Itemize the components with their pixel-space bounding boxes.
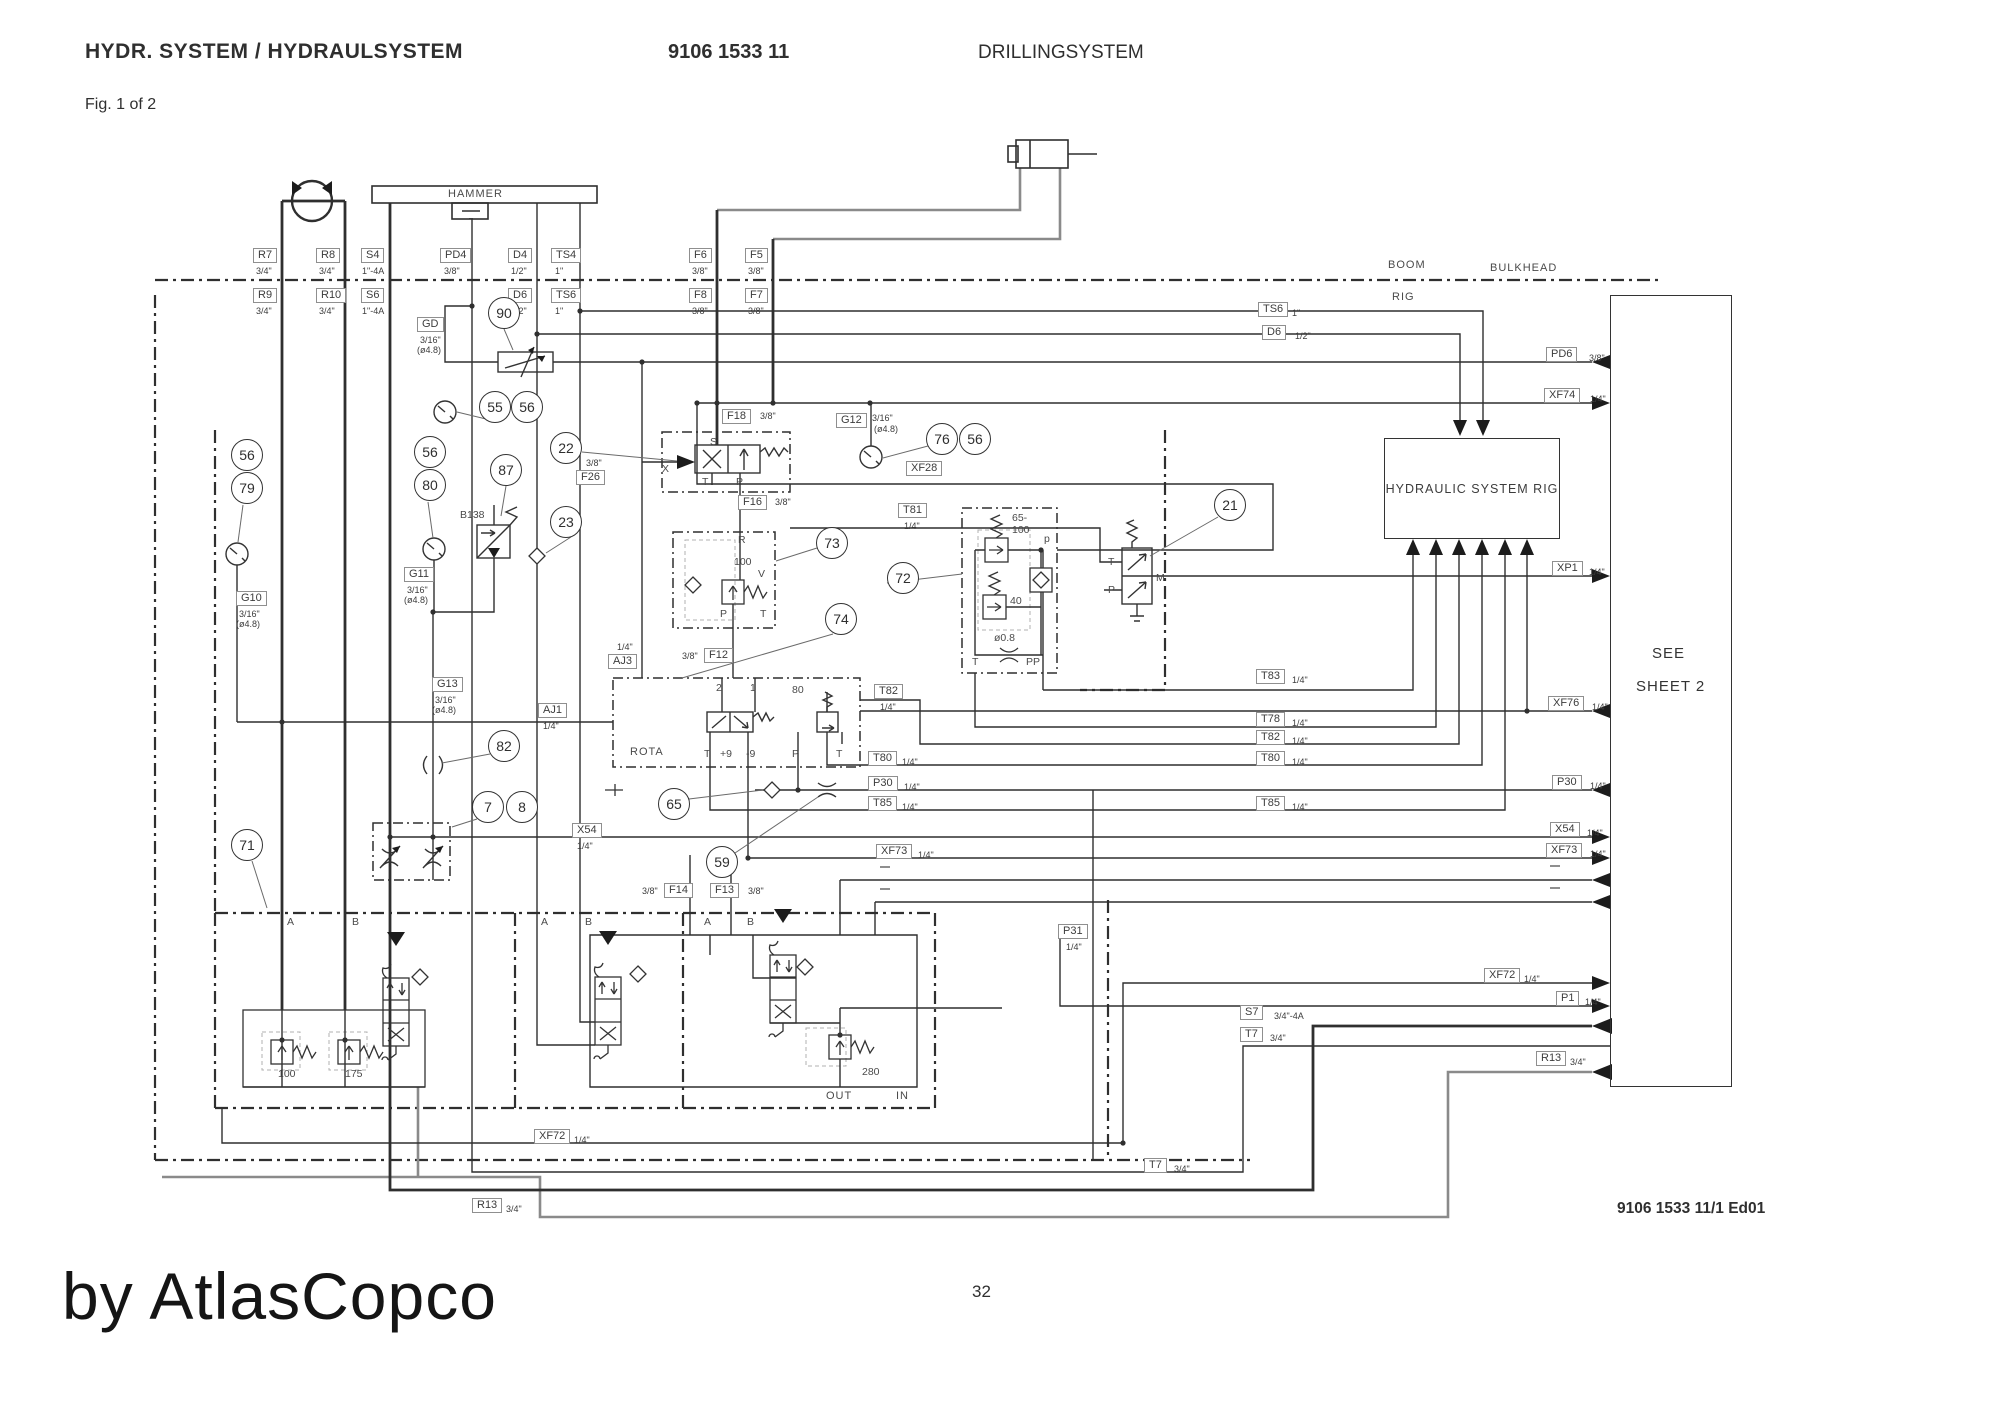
document-number: 9106 1533 11: [668, 41, 789, 64]
label-g13: G13: [432, 677, 463, 692]
schematic-page: HYDR. SYSTEM / HYDRAULSYSTEM 9106 1533 1…: [0, 0, 2000, 1413]
port-label-s6: S6: [361, 288, 384, 303]
letter-t-rota: T: [704, 748, 710, 760]
label-ar11-l: [880, 866, 890, 868]
hose-size-xp1: 1/4": [1589, 567, 1605, 577]
port-size-s4: 1"-4A: [362, 266, 384, 276]
hose-label-ts6: TS6: [1258, 302, 1288, 317]
size-p30-l: 1/4": [904, 782, 920, 792]
hydraulic-system-rig-box: HYDRAULIC SYSTEM RIG: [1384, 438, 1560, 539]
value-orifice: ø0.8: [994, 632, 1015, 644]
hose-size-p30-r: 1/4": [1590, 781, 1606, 791]
label-t83: T83: [1256, 669, 1285, 684]
port-label-r7: R7: [253, 248, 277, 263]
size-t80-l: 1/4": [902, 757, 918, 767]
letter-t-f18: T: [702, 476, 708, 488]
system-name: DRILLINGSYSTEM: [978, 42, 1144, 64]
value-65: 65-: [1012, 512, 1027, 524]
hose-size-s7: 3/4"-4A: [1274, 1011, 1304, 1021]
drill-g13: (ø4.8): [432, 705, 456, 715]
port-size-ts6: 1": [555, 306, 563, 316]
callout-22: 22: [550, 432, 582, 464]
letter-b-sec2: B: [585, 916, 592, 928]
callout-56-d: 56: [959, 423, 991, 455]
port-size-ts4: 1": [555, 266, 563, 276]
size-t78: 1/4": [1292, 718, 1308, 728]
letter-r: R: [738, 534, 746, 546]
size-aj3: 1/4": [617, 642, 633, 652]
letter-t-72: T: [972, 656, 978, 668]
callout-82: 82: [488, 730, 520, 762]
port-label-f6: F6: [689, 248, 712, 263]
size-aj1: 1/4": [543, 721, 559, 731]
callout-79: 79: [231, 472, 263, 504]
page-number: 32: [972, 1282, 991, 1302]
size-t7-b: 3/4": [1174, 1164, 1190, 1174]
label-p30-l: P30: [868, 776, 898, 791]
callout-7: 7: [472, 791, 504, 823]
label-g10: G10: [236, 591, 267, 606]
label-xf28: XF28: [906, 461, 942, 476]
letter-p-small: p: [1044, 533, 1050, 545]
label-f12: F12: [704, 648, 733, 663]
label-b138: B138: [460, 509, 485, 521]
callout-56-a: 56: [511, 391, 543, 423]
zone-boom: BOOM: [1388, 259, 1426, 271]
port-label-s4: S4: [361, 248, 384, 263]
label-p31: P31: [1058, 924, 1088, 939]
label-f13: F13: [710, 883, 739, 898]
size-t85-r: 1/4": [1292, 802, 1308, 812]
callout-74: 74: [825, 603, 857, 635]
letter-p-73: P: [720, 608, 727, 620]
letter-s-f18: S: [710, 436, 717, 448]
hose-size-xf76: 1/4": [1592, 702, 1608, 712]
port-size-d4: 1/2": [511, 266, 527, 276]
callout-73: 73: [816, 527, 848, 559]
value-100: 100: [278, 1068, 296, 1080]
zone-hammer: HAMMER: [448, 188, 503, 200]
hose-label-r13-r: R13: [1536, 1051, 1566, 1066]
port-size-r7: 3/4": [256, 266, 272, 276]
size-x54-l: 1/4": [577, 841, 593, 851]
hose-size-r13-r: 3/4": [1570, 1057, 1586, 1067]
label-t81: T81: [898, 503, 927, 518]
hose-size-xf73-r: 1/4": [1590, 849, 1606, 859]
hose-label-xf73-r: XF73: [1546, 843, 1582, 858]
hose-label-ar13-r: [1550, 887, 1560, 889]
size-g12: 3/16": [872, 413, 893, 423]
hose-label-pd6: PD6: [1546, 347, 1577, 362]
drill-g11: (ø4.8): [404, 595, 428, 605]
size-t82-l: 1/4": [880, 702, 896, 712]
value-175: 175: [345, 1068, 363, 1080]
hose-size-d6: 1/2": [1295, 331, 1311, 341]
port-size-s6: 1"-4A: [362, 306, 384, 316]
port-label-f5: F5: [745, 248, 768, 263]
label-aj3: AJ3: [608, 654, 637, 669]
size-f26: 3/8": [586, 458, 602, 468]
port-size-f6: 3/8": [692, 266, 708, 276]
hose-label-x54-r: X54: [1550, 822, 1580, 837]
port-label-pd4: PD4: [440, 248, 471, 263]
label-g11: G11: [404, 567, 434, 582]
label-g12: G12: [836, 413, 867, 428]
size-t80-r: 1/4": [1292, 757, 1308, 767]
size-f14: 3/8": [642, 886, 658, 896]
zone-rota: ROTA: [630, 746, 664, 758]
label-t82-r: T82: [1256, 730, 1285, 745]
label-t78: T78: [1256, 712, 1285, 727]
port-label-r8: R8: [316, 248, 340, 263]
watermark: by AtlasCopco: [62, 1258, 497, 1334]
letter-a-sec3: A: [704, 916, 711, 928]
port-size-f8: 3/8": [692, 306, 708, 316]
letter-t-21: T: [1108, 556, 1114, 568]
size-f16: 3/8": [775, 497, 791, 507]
size-t85-l: 1/4": [902, 802, 918, 812]
letter-v: V: [758, 568, 765, 580]
label-x54-l: X54: [572, 823, 602, 838]
letter-t2-rota: T: [836, 748, 842, 760]
hose-label-p1: P1: [1556, 991, 1579, 1006]
letter-pp-72: PP: [1026, 656, 1040, 668]
hose-label-p30-r: P30: [1552, 775, 1582, 790]
port-size-f5: 3/8": [748, 266, 764, 276]
hose-label-ar11-r: [1550, 865, 1560, 867]
label-t85-l: T85: [868, 796, 897, 811]
zone-in: IN: [896, 1090, 909, 1102]
callout-23: 23: [550, 506, 582, 538]
callout-87: 87: [490, 454, 522, 486]
port-size-r10: 3/4": [319, 306, 335, 316]
label-r13-b: R13: [472, 1198, 502, 1213]
drill-gd: (ø4.8): [417, 345, 441, 355]
port-label-f7: F7: [745, 288, 768, 303]
label-aj1: AJ1: [538, 703, 567, 718]
callout-21: 21: [1214, 489, 1246, 521]
letter-2-rota: 2: [716, 682, 722, 694]
letter-p-f18: P: [736, 476, 743, 488]
callout-56-c: 56: [414, 436, 446, 468]
port-size-r9: 3/4": [256, 306, 272, 316]
hose-label-d6: D6: [1262, 325, 1286, 340]
hose-size-ts6: 1": [1292, 308, 1300, 318]
port-label-r9: R9: [253, 288, 277, 303]
callout-90: 90: [488, 297, 520, 329]
port-label-r10: R10: [316, 288, 346, 303]
letter-a-sec2: A: [541, 916, 548, 928]
label-xf73-l: XF73: [876, 844, 912, 859]
size-t83: 1/4": [1292, 675, 1308, 685]
label-xf72-b: XF72: [534, 1129, 570, 1144]
size-t82-r: 1/4": [1292, 736, 1308, 746]
label-t7-b: T7: [1144, 1158, 1167, 1173]
see-sheet2-line2: SHEET 2: [1636, 678, 1705, 695]
hose-size-t7-r: 3/4": [1270, 1033, 1286, 1043]
value-280: 280: [862, 1066, 880, 1078]
letter-b-sec3: B: [747, 916, 754, 928]
port-size-f7: 3/8": [748, 306, 764, 316]
label-f18: F18: [722, 409, 751, 424]
size-xf73-l: 1/4": [918, 850, 934, 860]
port-size-r8: 3/4": [319, 266, 335, 276]
hose-label-xf74: XF74: [1544, 388, 1580, 403]
label-gd: GD: [417, 317, 444, 332]
callout-55: 55: [479, 391, 511, 423]
letter-m-21: M: [1156, 572, 1165, 584]
label-t80-l: T80: [868, 751, 897, 766]
letter-t-73: T: [760, 608, 766, 620]
hose-size-p1: 1/4": [1585, 997, 1601, 1007]
hose-size-x54-r: 1/4": [1587, 828, 1603, 838]
label-t80-r: T80: [1256, 751, 1285, 766]
label-f16: F16: [738, 495, 767, 510]
edition-number: 9106 1533 11/1 Ed01: [1617, 1200, 1765, 1218]
drill-g12: (ø4.8): [874, 424, 898, 434]
size-g11: 3/16": [407, 585, 428, 595]
figure-caption: Fig. 1 of 2: [85, 96, 156, 114]
value-65b: 100: [1012, 524, 1030, 536]
letter-p-21: P: [1108, 584, 1115, 596]
hose-size-pd6: 3/8": [1589, 353, 1605, 363]
size-f13: 3/8": [748, 886, 764, 896]
hose-label-xp1: XP1: [1552, 561, 1583, 576]
hose-label-s7: S7: [1240, 1005, 1263, 1020]
size-gd: 3/16": [420, 335, 441, 345]
hose-size-xf72-r: 1/4": [1524, 974, 1540, 984]
callout-65: 65: [658, 788, 690, 820]
letter-a-sec1: A: [287, 916, 294, 928]
zone-bulkhead: BULKHEAD: [1490, 262, 1557, 274]
callout-71: 71: [231, 829, 263, 861]
port-label-f8: F8: [689, 288, 712, 303]
size-g10: 3/16": [239, 609, 260, 619]
label-f14: F14: [664, 883, 693, 898]
callout-59: 59: [706, 846, 738, 878]
size-t81: 1/4": [904, 521, 920, 531]
value-40: 40: [1010, 595, 1022, 607]
value-80: 80: [792, 684, 804, 696]
zone-out: OUT: [826, 1090, 852, 1102]
label-ar13-l: [880, 888, 890, 890]
letter-b-sec1: B: [352, 916, 359, 928]
hose-size-xf74: 1/4": [1590, 394, 1606, 404]
page-title: HYDR. SYSTEM / HYDRAULSYSTEM: [85, 40, 463, 64]
size-xf72-b: 1/4": [574, 1135, 590, 1145]
port-label-ts4: TS4: [551, 248, 581, 263]
hose-label-xf76: XF76: [1548, 696, 1584, 711]
see-sheet2-line1: SEE: [1652, 645, 1685, 662]
callout-80: 80: [414, 469, 446, 501]
size-f18: 3/8": [760, 411, 776, 421]
zone-rig: RIG: [1392, 291, 1415, 303]
letter-1-rota: 1: [750, 682, 756, 694]
label-t82-l: T82: [874, 684, 903, 699]
size-p31: 1/4": [1066, 942, 1082, 952]
hose-label-t7-r: T7: [1240, 1027, 1263, 1042]
port-size-pd4: 3/8": [444, 266, 460, 276]
hose-label-xf72-r: XF72: [1484, 968, 1520, 983]
letter-plus9: +9: [720, 748, 732, 760]
port-label-ts6: TS6: [551, 288, 581, 303]
port-label-d4: D4: [508, 248, 532, 263]
callout-72: 72: [887, 562, 919, 594]
letter-x-f18: X: [662, 463, 669, 475]
letter-p-rota: P: [792, 748, 799, 760]
callout-76: 76: [926, 423, 958, 455]
callout-8: 8: [506, 791, 538, 823]
label-t85-r: T85: [1256, 796, 1285, 811]
size-r13-b: 3/4": [506, 1204, 522, 1214]
drill-g10: (ø4.8): [236, 619, 260, 629]
letter-minus9: -9: [746, 748, 755, 760]
size-f12: 3/8": [682, 651, 698, 661]
size-g13: 3/16": [435, 695, 456, 705]
callout-56-b: 56: [231, 439, 263, 471]
value-100-relief: 100: [734, 556, 752, 568]
label-f26: F26: [576, 470, 605, 485]
